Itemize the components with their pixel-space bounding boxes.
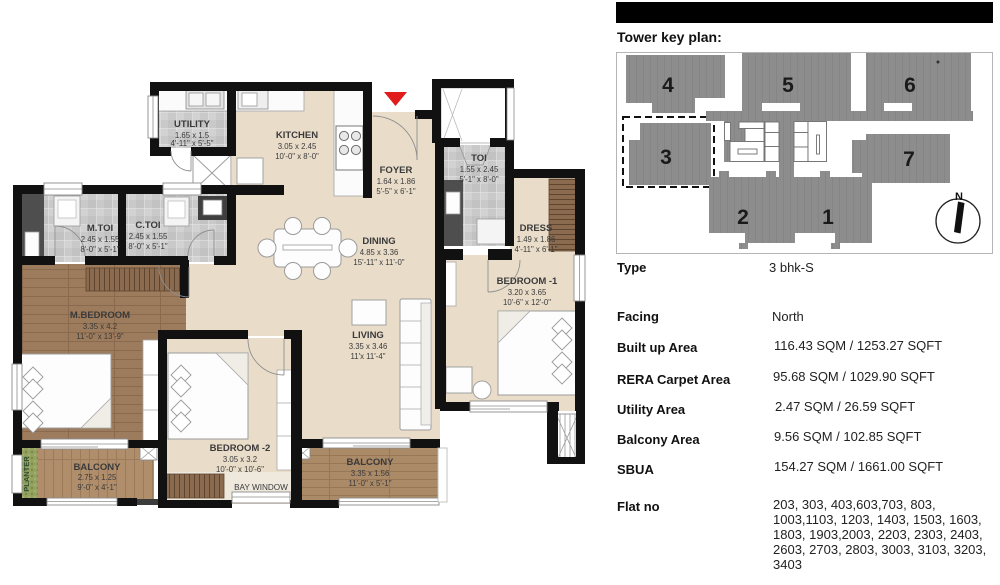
svg-text:SBUA: SBUA: [617, 462, 654, 477]
svg-text:BALCONY: BALCONY: [74, 462, 122, 473]
svg-text:2.45 x 1.55: 2.45 x 1.55: [129, 232, 168, 241]
svg-text:10'-6" x 12'-0": 10'-6" x 12'-0": [503, 298, 551, 307]
svg-text:M.TOI: M.TOI: [87, 223, 113, 234]
svg-text:DRESS: DRESS: [520, 223, 553, 234]
svg-text:Tower key plan:: Tower key plan:: [617, 29, 722, 45]
svg-text:3.35 x 3.46: 3.35 x 3.46: [349, 342, 388, 351]
svg-text:Facing: Facing: [617, 309, 659, 324]
svg-text:4: 4: [662, 74, 674, 97]
svg-text:TOI: TOI: [471, 153, 487, 164]
svg-text:5: 5: [782, 74, 794, 97]
svg-text:3.05 x 3.2: 3.05 x 3.2: [223, 455, 257, 464]
svg-text:2.75 x 1.25: 2.75 x 1.25: [78, 473, 117, 482]
svg-text:11'x 11'-4": 11'x 11'-4": [351, 352, 386, 361]
svg-text:5'-5" x 6'-1": 5'-5" x 6'-1": [376, 187, 416, 196]
svg-text:7: 7: [903, 148, 915, 171]
svg-text:6: 6: [904, 74, 916, 97]
svg-text:BEDROOM -2: BEDROOM -2: [210, 443, 271, 454]
svg-text:4'-11" x 6'-1": 4'-11" x 6'-1": [514, 245, 557, 254]
svg-text:Balcony Area: Balcony Area: [617, 432, 700, 447]
svg-text:203, 303, 403,603,703, 803,: 203, 303, 403,603,703, 803,: [773, 497, 936, 512]
svg-text:154.27 SQM / 1661.00 SQFT: 154.27 SQM / 1661.00 SQFT: [774, 459, 943, 474]
svg-text:8'-0" x 5'-1": 8'-0" x 5'-1": [128, 242, 168, 251]
svg-text:KITCHEN: KITCHEN: [276, 130, 318, 141]
svg-text:1803, 1903,2003, 2203, 2303, 2: 1803, 1903,2003, 2203, 2303, 2403,: [773, 527, 983, 542]
svg-text:1003,1103, 1203, 1403, 1503, 1: 1003,1103, 1203, 1403, 1503, 1603,: [773, 512, 982, 527]
svg-text:BEDROOM -1: BEDROOM -1: [497, 276, 558, 287]
svg-text:Type: Type: [617, 260, 646, 275]
svg-text:8'-0" x 5'-1": 8'-0" x 5'-1": [80, 245, 120, 254]
svg-text:3.35 x 1.56: 3.35 x 1.56: [351, 469, 390, 478]
svg-text:3.35 x 4.2: 3.35 x 4.2: [83, 322, 117, 331]
svg-text:116.43 SQM / 1253.27 SQFT: 116.43 SQM / 1253.27 SQFT: [774, 338, 942, 353]
svg-text:9'-0" x 4'-1": 9'-0" x 4'-1": [77, 483, 117, 492]
svg-text:N: N: [955, 191, 963, 203]
svg-text:2603, 2703, 2803, 3003, 3103,: 2603, 2703, 2803, 3003, 3103, 3203,: [773, 542, 986, 557]
svg-text:DINING: DINING: [362, 236, 395, 247]
svg-text:11'-0" x 13'-9": 11'-0" x 13'-9": [76, 332, 124, 341]
svg-text:Built up Area: Built up Area: [617, 340, 698, 355]
svg-text:RERA Carpet Area: RERA Carpet Area: [617, 372, 731, 387]
svg-text:C.TOI: C.TOI: [135, 220, 160, 231]
svg-text:15'-11" x 11'-0": 15'-11" x 11'-0": [353, 258, 404, 267]
svg-text:3.20 x 3.65: 3.20 x 3.65: [508, 288, 547, 297]
svg-text:Utility Area: Utility Area: [617, 402, 686, 417]
svg-text:4.85 x 3.36: 4.85 x 3.36: [360, 248, 399, 257]
svg-text:3403: 3403: [773, 557, 802, 572]
svg-text:1: 1: [822, 206, 834, 229]
svg-text:North: North: [772, 309, 804, 324]
svg-text:11'-0" x 5'-1": 11'-0" x 5'-1": [348, 479, 391, 488]
svg-text:1.55 x 2.45: 1.55 x 2.45: [460, 165, 499, 174]
svg-text:BAY WINDOW: BAY WINDOW: [234, 483, 288, 492]
svg-text:10'-0" x 10'-6": 10'-0" x 10'-6": [216, 465, 264, 474]
svg-text:1.49 x 1.86: 1.49 x 1.86: [517, 235, 556, 244]
svg-text:UTILITY: UTILITY: [174, 119, 211, 130]
svg-text:2: 2: [737, 206, 749, 229]
svg-text:2.45 x 1.55: 2.45 x 1.55: [81, 235, 120, 244]
svg-text:5'-1" x 8'-0": 5'-1" x 8'-0": [459, 175, 499, 184]
svg-text:3 bhk-S: 3 bhk-S: [769, 260, 814, 275]
svg-text:10'-0" x 8'-0": 10'-0" x 8'-0": [275, 152, 319, 161]
svg-text:LIVING: LIVING: [352, 330, 384, 341]
svg-text:2.47 SQM / 26.59 SQFT: 2.47 SQM / 26.59 SQFT: [775, 399, 915, 414]
svg-text:PLANTER: PLANTER: [22, 456, 31, 492]
svg-text:4'-11" x 5'-5": 4'-11" x 5'-5": [170, 139, 213, 148]
svg-text:3: 3: [660, 146, 672, 169]
svg-text:FOYER: FOYER: [380, 165, 413, 176]
svg-text:BALCONY: BALCONY: [347, 457, 395, 468]
svg-text:Flat no: Flat no: [617, 499, 660, 514]
svg-text:3.05 x 2.45: 3.05 x 2.45: [278, 142, 317, 151]
svg-text:M.BEDROOM: M.BEDROOM: [70, 310, 130, 321]
svg-text:1.64 x 1.86: 1.64 x 1.86: [377, 177, 416, 186]
svg-text:95.68 SQM / 1029.90 SQFT: 95.68 SQM / 1029.90 SQFT: [773, 369, 935, 384]
svg-text:9.56 SQM / 102.85 SQFT: 9.56 SQM / 102.85 SQFT: [774, 429, 921, 444]
